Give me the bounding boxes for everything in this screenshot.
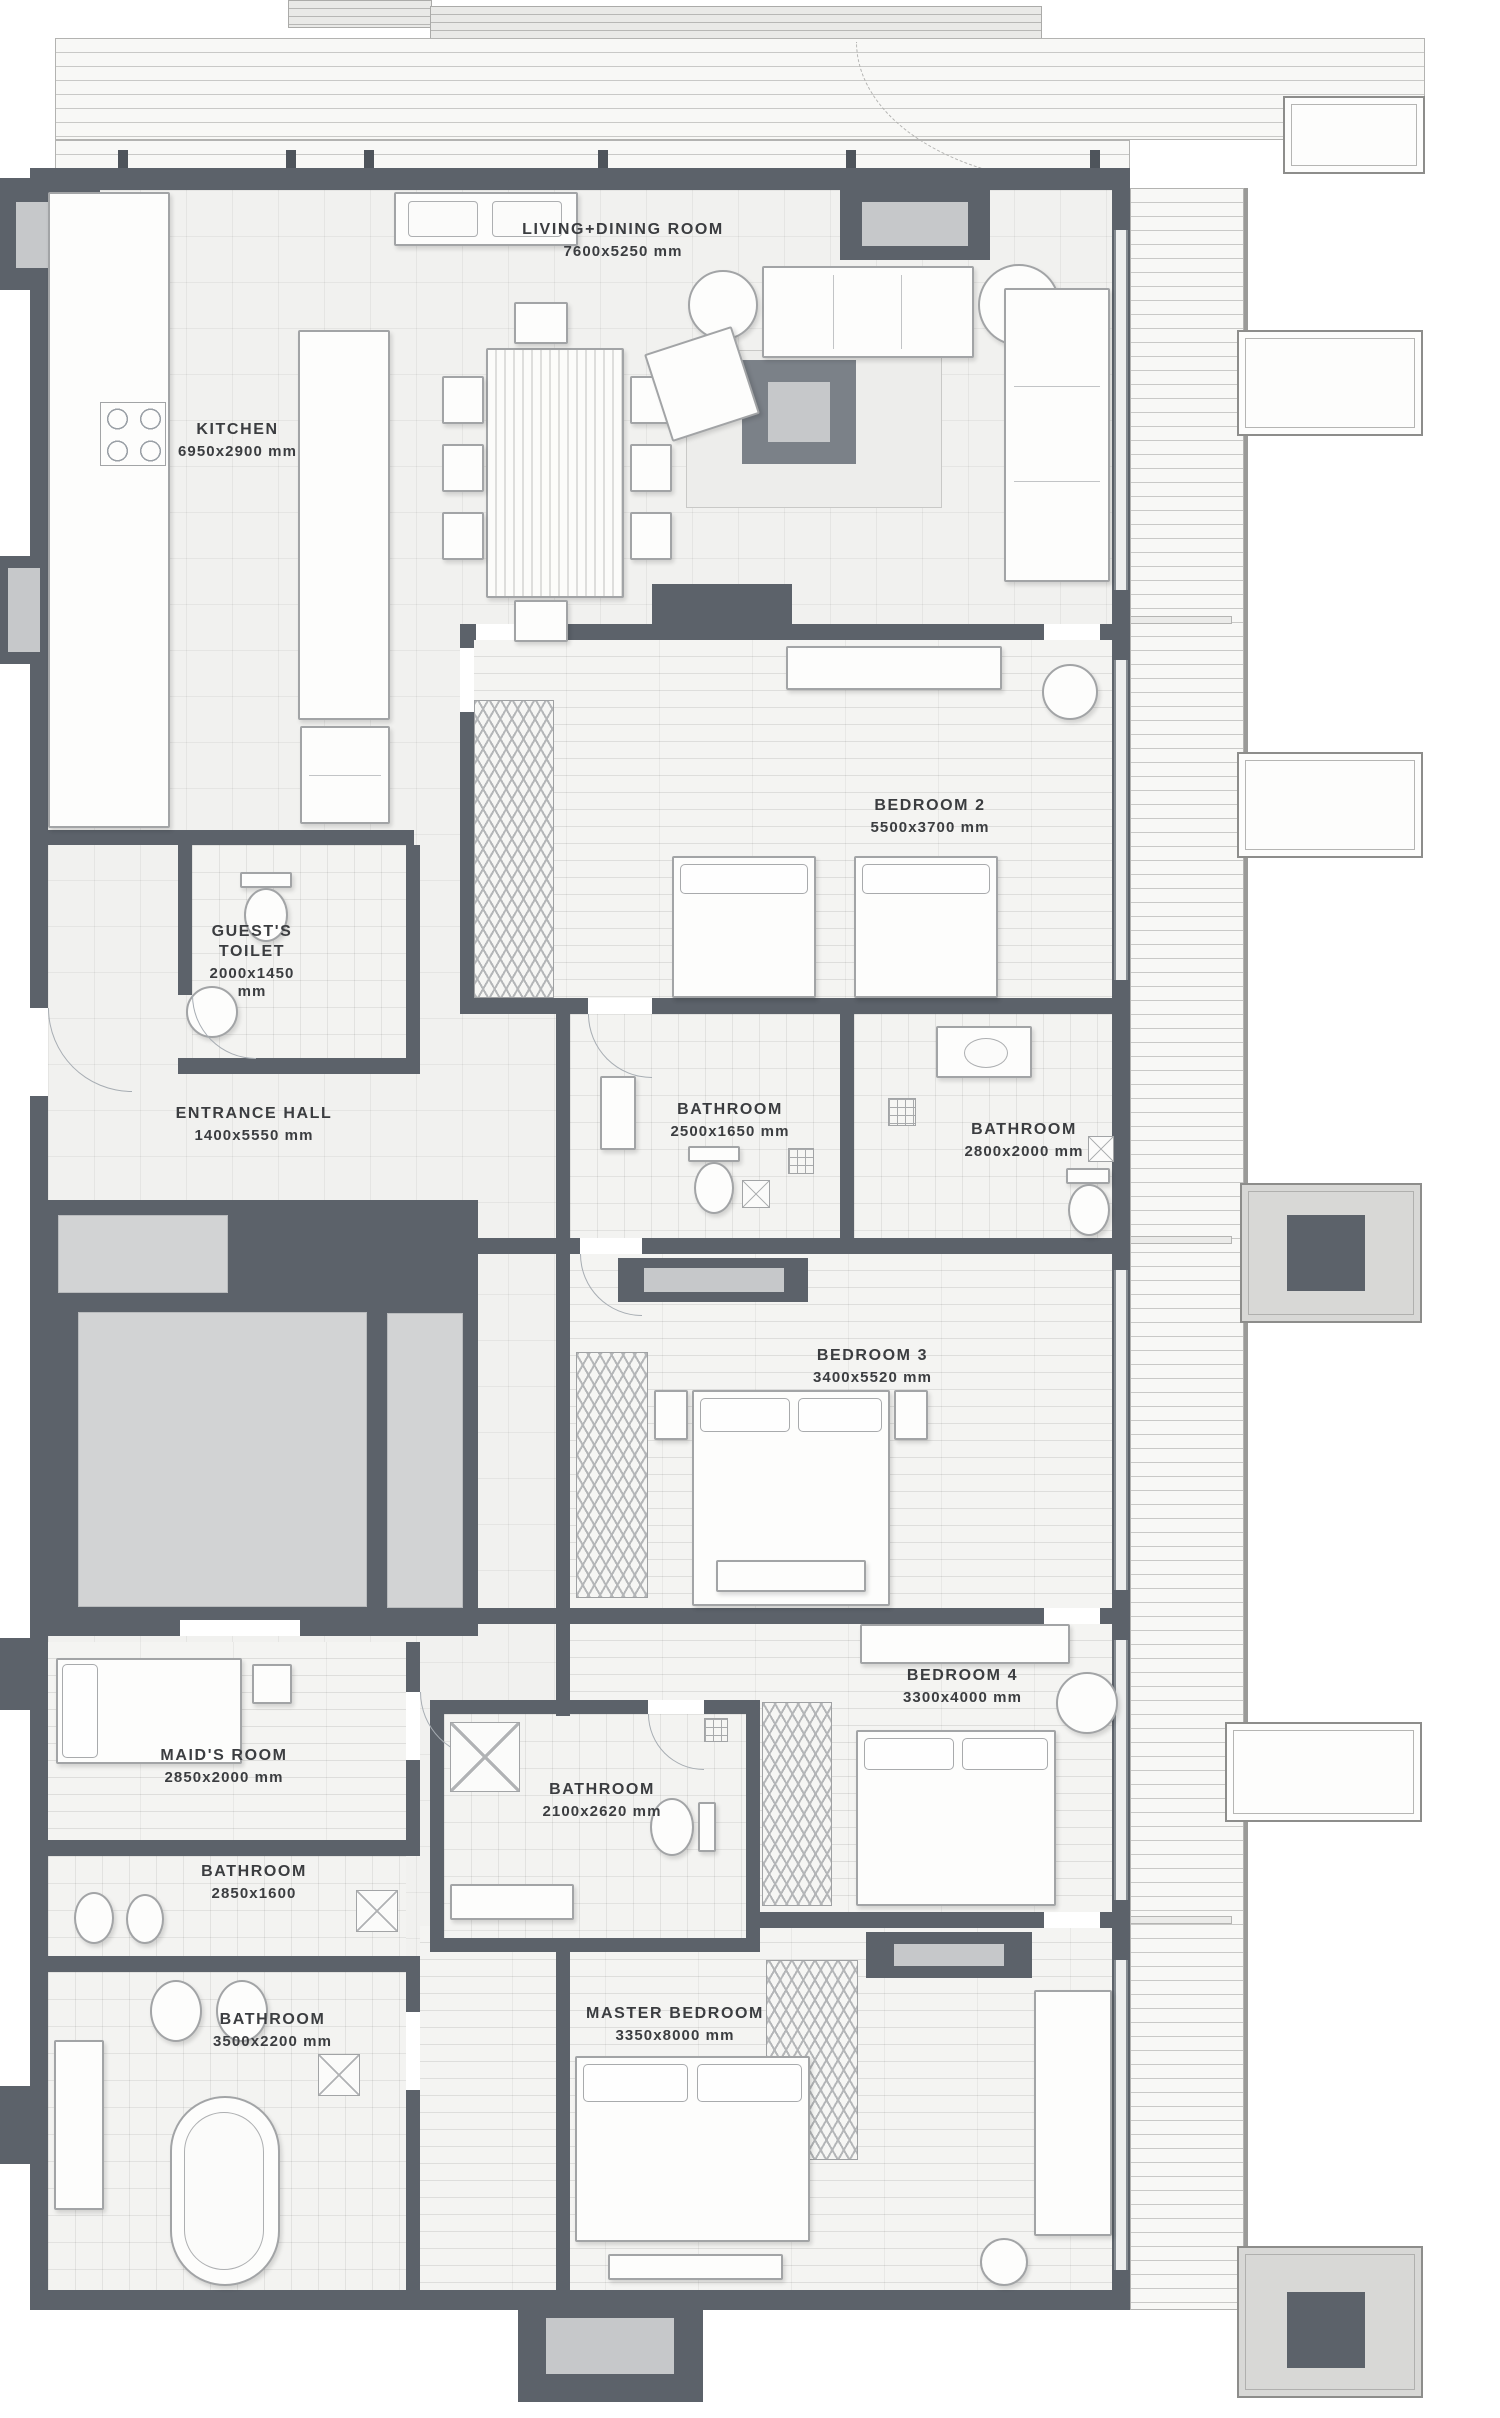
wardrobe (474, 700, 554, 998)
wall (37, 1840, 420, 1856)
dining-chair (442, 512, 484, 560)
refrigerator (300, 726, 390, 824)
toilet-tank (240, 872, 292, 888)
terrace-deck-strip (430, 6, 1042, 40)
column-post (364, 150, 374, 168)
balcony-divider (1130, 1236, 1232, 1244)
bench (716, 1560, 866, 1592)
pillow (864, 1738, 954, 1770)
toilet (694, 1162, 734, 1214)
plant (1042, 664, 1098, 720)
room-label-kitchen: KITCHEN 6950x2900 mm (120, 420, 355, 461)
vanity (936, 1026, 1032, 1078)
column-block (0, 2086, 48, 2164)
washer (318, 2054, 360, 2096)
toilet-tank (688, 1146, 740, 1162)
core-shaft (78, 1312, 367, 1607)
wardrobe (576, 1352, 648, 1598)
terrace-deck-strip (288, 0, 432, 28)
flue-fill (862, 202, 968, 246)
room-label-bedroom2: BEDROOM 2 5500x3700 mm (790, 796, 1070, 837)
dresser (786, 646, 1002, 690)
column-post (1090, 150, 1100, 168)
door-opening (460, 648, 474, 712)
window-glazing (1114, 1270, 1128, 1590)
column-post (846, 150, 856, 168)
tv-console-top (894, 1944, 1004, 1966)
balcony-divider (1130, 616, 1232, 624)
room-label-master: MASTER BEDROOM 3350x8000 mm (540, 2004, 810, 2045)
nightstand (894, 1390, 928, 1440)
tv-console (652, 584, 792, 624)
balcony-divider (1130, 1916, 1232, 1924)
wall (178, 1058, 420, 1074)
pillow (62, 1664, 98, 1758)
toilet-tank (698, 1802, 716, 1852)
pillow (862, 864, 990, 894)
toilet-tank (1066, 1168, 1110, 1184)
bidet (126, 1894, 164, 1944)
washer (356, 1890, 398, 1932)
dresser (860, 1624, 1070, 1664)
wall (48, 830, 414, 845)
bathtub-inner (184, 2112, 264, 2270)
wall (556, 1952, 570, 2290)
sink-basin (964, 1038, 1008, 1068)
room-label-bedroom4: BEDROOM 4 3300x4000 mm (830, 1666, 1095, 1707)
column-fill (546, 2318, 674, 2374)
wall (430, 1938, 760, 1952)
planter-box (1237, 330, 1423, 436)
pillow (680, 864, 808, 894)
pillow (962, 1738, 1048, 1770)
planter-core (1287, 1215, 1365, 1291)
coffee-table-top (768, 382, 830, 442)
window-glazing (1114, 1640, 1128, 1900)
nightstand (252, 1664, 292, 1704)
wall (178, 845, 192, 995)
core-shaft (58, 1215, 228, 1293)
column-post (598, 150, 608, 168)
room-label-bathroom-2500: BATHROOM 2500x1650 mm (640, 1100, 820, 1141)
pillow (798, 1398, 882, 1432)
nightstand (654, 1390, 688, 1440)
planter-box (1225, 1722, 1422, 1822)
pillow (697, 2064, 802, 2102)
door-opening (588, 998, 652, 1014)
wall (556, 1254, 570, 1608)
dining-chair (514, 600, 568, 642)
dining-chair (630, 444, 672, 492)
wardrobe (762, 1702, 832, 1906)
side-balcony-deck (1130, 188, 1244, 2310)
entrance-door-opening (30, 1008, 48, 1096)
dining-table (486, 348, 624, 598)
door-opening (1044, 624, 1100, 640)
dining-chair (442, 376, 484, 424)
wall (460, 1238, 1130, 1254)
column-post (118, 150, 128, 168)
window-glazing (1114, 660, 1128, 980)
top-terrace-deck (55, 38, 1425, 140)
toilet (74, 1892, 114, 1944)
door-opening (1044, 1608, 1100, 1624)
core-shaft (387, 1313, 463, 1608)
sofa (762, 266, 974, 358)
pillow (583, 2064, 688, 2102)
shower-drain (704, 1718, 728, 1742)
dresser-top (644, 1268, 784, 1292)
wall (840, 1014, 854, 1254)
door-opening (406, 1692, 420, 1760)
wall (30, 168, 1130, 190)
toilet (1068, 1184, 1110, 1236)
wall (460, 1608, 1130, 1624)
door-opening (648, 1700, 704, 1714)
wall (406, 845, 420, 1074)
shower-drain (788, 1148, 814, 1174)
wall (37, 1956, 420, 1972)
door-opening (406, 2012, 420, 2090)
room-label-bathroom-2850: BATHROOM 2850x1600 (160, 1862, 348, 1903)
floor-plan: LIVING+DINING ROOM 7600x5250 mm KITCHEN … (0, 0, 1500, 2418)
room-label-entrance-hall: ENTRANCE HALL 1400x5550 mm (120, 1104, 388, 1145)
planter-box (1237, 752, 1423, 858)
room-label-living: LIVING+DINING ROOM 7600x5250 mm (463, 220, 783, 261)
room-label-bathroom-2100: BATHROOM 2100x2620 mm (510, 1780, 694, 1821)
door-opening (180, 1620, 300, 1636)
sofa (1004, 288, 1110, 582)
room-label-bathroom-3500: BATHROOM 3500x2200 mm (175, 2010, 370, 2051)
bench (608, 2254, 783, 2280)
kitchen-island (298, 330, 390, 720)
vanity (600, 1076, 636, 1150)
column-post (286, 150, 296, 168)
tall-cabinet (1034, 1990, 1112, 2236)
dining-chair (514, 302, 568, 344)
room-label-bathroom-2800: BATHROOM 2800x2000 mm (930, 1120, 1118, 1161)
room-label-bedroom3: BEDROOM 3 3400x5520 mm (740, 1346, 1005, 1387)
door-opening (580, 1238, 642, 1254)
door-opening (1044, 1912, 1100, 1928)
bathtub (170, 2096, 280, 2286)
column-block (0, 1638, 48, 1710)
room-label-maids-room: MAID'S ROOM 2850x2000 mm (90, 1746, 358, 1787)
window-glazing (1114, 230, 1128, 590)
dining-chair (442, 444, 484, 492)
vanity (450, 1884, 574, 1920)
planter-box (1283, 96, 1425, 174)
pillow (700, 1398, 790, 1432)
planter-core (1287, 2292, 1365, 2368)
column-fill (8, 568, 40, 652)
window-glazing (1114, 1960, 1128, 2270)
plant (980, 2238, 1028, 2286)
dining-chair (630, 512, 672, 560)
wall (556, 1014, 570, 1254)
room-label-guest-toilet: GUEST'S TOILET 2000x1450 mm (196, 922, 308, 1001)
washer (742, 1180, 770, 1208)
wall (460, 998, 1130, 1014)
shower-drain (888, 1098, 916, 1126)
kitchen-counter (48, 192, 170, 828)
vanity (54, 2040, 104, 2210)
